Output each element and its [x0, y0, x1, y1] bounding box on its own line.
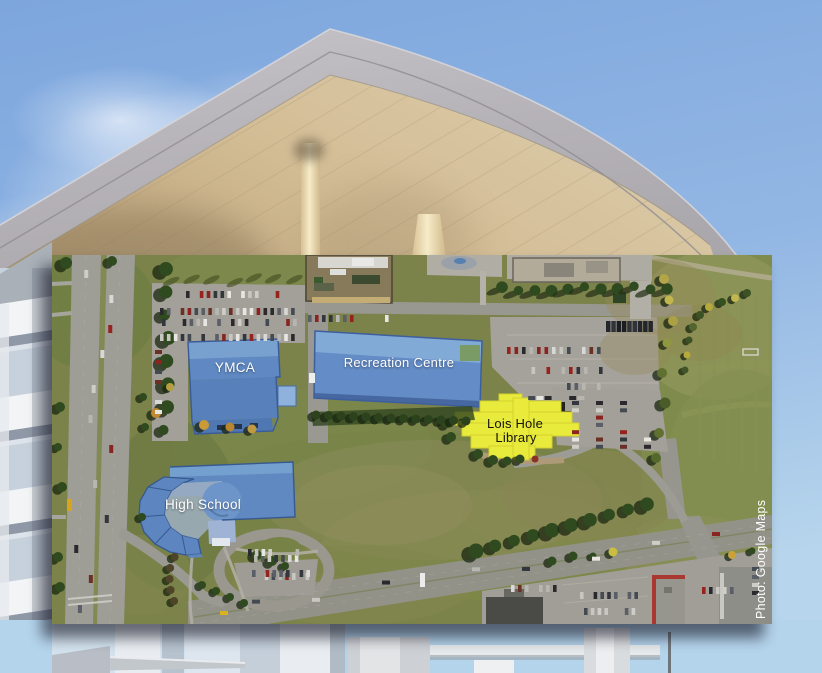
svg-text:Recreation Centre: Recreation Centre [344, 355, 455, 370]
svg-text:YMCA: YMCA [215, 360, 255, 375]
svg-text:Library: Library [495, 430, 536, 445]
svg-text:High School: High School [165, 497, 241, 512]
svg-text:Photo: Google Maps: Photo: Google Maps [754, 500, 768, 619]
svg-text:Lois Hole: Lois Hole [487, 416, 543, 431]
